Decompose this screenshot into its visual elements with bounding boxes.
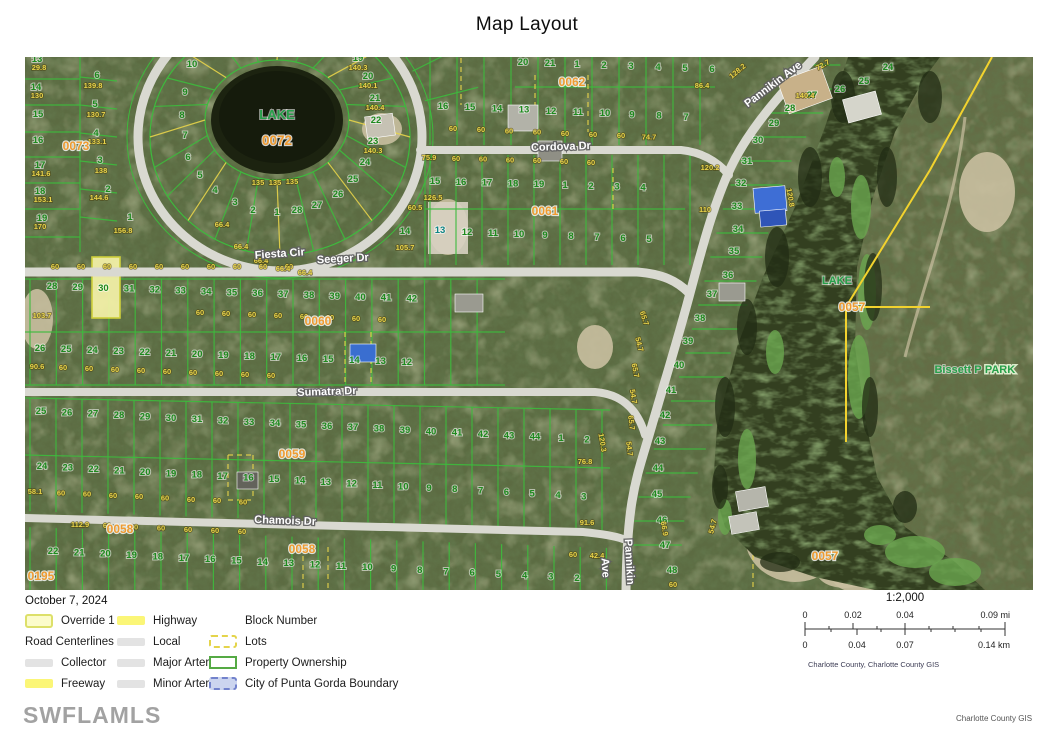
dimension-label: 91.6 — [580, 518, 595, 527]
legend-swatch-road-gray — [117, 680, 145, 688]
dimension-label: 60 — [137, 366, 145, 375]
lot-number: 33 — [732, 201, 743, 212]
area-label: Bissett P — [934, 364, 981, 376]
dimension-label: 138 — [95, 166, 108, 175]
lot-number: 14 — [349, 355, 360, 366]
area-label: LAKE — [822, 275, 852, 287]
lot-number: 16 — [243, 473, 254, 484]
lot-number: 5 — [682, 63, 688, 74]
lot-number: 5 — [496, 569, 502, 580]
lot-number: 27 — [88, 409, 99, 420]
lot-number: 37 — [348, 422, 359, 433]
lot-number: 22 — [88, 464, 99, 475]
legend-label: Highway — [153, 615, 197, 627]
lot-number: 3 — [548, 572, 553, 583]
lot-number: 4 — [655, 62, 661, 73]
area-label: 0072 — [262, 133, 292, 148]
lot-number: 40 — [355, 292, 366, 303]
dimension-label: 60 — [187, 495, 195, 504]
lot-number: 1 — [574, 59, 580, 70]
lot-number: 40 — [426, 426, 437, 437]
lot-number: 40 — [674, 360, 685, 371]
dimension-label: 60 — [83, 490, 91, 499]
dimension-label: 135 — [252, 178, 265, 187]
lot-number: 38 — [304, 290, 315, 301]
lot-number: 37 — [278, 289, 289, 300]
area-label: LAKE — [259, 107, 295, 122]
legend-swatch-road-gray — [25, 659, 53, 667]
block-number-label: 0061 — [532, 204, 559, 218]
lot-number: 26 — [835, 84, 846, 95]
dimension-label: 60 — [241, 370, 249, 379]
legend-item-local: Local — [117, 631, 209, 652]
block-number-label: 0062 — [559, 75, 586, 89]
lot-number: 13 — [435, 225, 446, 236]
lot-number: 17 — [271, 352, 282, 363]
lot-number: 43 — [655, 436, 666, 447]
page-title: Map Layout — [0, 14, 1054, 36]
lot-number: 2 — [601, 60, 606, 71]
dimension-label: 60 — [233, 262, 241, 271]
dimension-label: 60 — [85, 364, 93, 373]
dimension-label: 105.7 — [396, 243, 415, 252]
dimension-label: 126.5 — [424, 193, 443, 202]
lot-number: 15 — [33, 109, 44, 120]
dimension-label: 139.8 — [84, 81, 103, 90]
scale-label: 0.07 — [896, 640, 914, 650]
lot-number: 28 — [292, 205, 303, 216]
dimension-label: 29.8 — [32, 63, 47, 72]
lot-number: 8 — [179, 110, 184, 121]
lot-number: 12 — [546, 106, 557, 117]
lot-number: 2 — [574, 573, 579, 584]
lot-number: 19 — [218, 350, 229, 361]
dimension-label: 140.4 — [796, 91, 816, 100]
legend-swatch-road-gray — [117, 659, 145, 667]
dimension-label: 60 — [184, 525, 192, 534]
dimension-label: 156.8 — [114, 226, 133, 235]
lot-number: 31 — [742, 156, 753, 167]
dimension-label: 66.4 — [234, 242, 249, 251]
lot-number: 2 — [584, 434, 589, 445]
lot-number: 34 — [733, 224, 744, 235]
dimension-label: 60 — [617, 131, 625, 140]
lot-number: 6 — [94, 70, 99, 81]
lot-number: 11 — [573, 107, 584, 118]
legend-column-1: Override 1Road CenterlinesCollectorFreew… — [25, 610, 117, 694]
lot-number: 41 — [381, 293, 392, 304]
lot-number: 19 — [166, 468, 177, 479]
lot-number: 32 — [736, 178, 747, 189]
lot-number: 42 — [660, 410, 671, 421]
dimension-label: 66.4 — [276, 264, 291, 273]
lot-number: 6 — [185, 152, 190, 163]
lot-number: 10 — [362, 562, 373, 573]
scale-label: 0.02 — [844, 610, 862, 620]
lot-number: 41 — [452, 428, 463, 439]
dimension-label: 60 — [378, 315, 386, 324]
lot-number: 29 — [769, 118, 780, 129]
lot-number: 10 — [600, 108, 611, 119]
lot-number: 4 — [522, 570, 528, 581]
lot-number: 42 — [407, 294, 418, 305]
lot-number: 1 — [558, 433, 564, 444]
legend-item-city-of-punta-gorda-boundary: City of Punta Gorda Boundary — [209, 673, 429, 694]
scale-ratio: 1:2,000 — [782, 592, 1028, 604]
dimension-label: 60 — [267, 371, 275, 380]
dimension-label: 60 — [352, 314, 360, 323]
lot-number: 21 — [166, 348, 177, 359]
lot-number: 30 — [753, 135, 764, 146]
lot-number: 10 — [398, 481, 409, 492]
lot-number: 19 — [534, 179, 545, 190]
lot-number: 35 — [296, 420, 307, 431]
lot-number: 15 — [430, 176, 441, 187]
legend-swatch-override — [25, 614, 53, 628]
dimension-label: 60 — [449, 124, 457, 133]
legend-label: Freeway — [61, 678, 105, 690]
legend-item-road-centerlines: Road Centerlines — [25, 631, 117, 652]
dimension-label: 60 — [669, 580, 677, 589]
lot-number: 6 — [504, 487, 509, 498]
dimension-label: 130 — [31, 91, 44, 100]
legend-swatch-city — [209, 677, 237, 690]
dimension-label: 60 — [59, 363, 67, 372]
lot-number: 21 — [114, 465, 125, 476]
lot-number: 5 — [530, 489, 536, 500]
lot-number: 16 — [297, 353, 308, 364]
dimension-label: 140.1 — [359, 81, 378, 90]
block-number-label: 0057 — [812, 549, 839, 563]
lot-number: 15 — [269, 474, 280, 485]
lot-number: 13 — [321, 477, 332, 488]
lot-number: 12 — [462, 227, 473, 238]
dimension-label: 60 — [505, 126, 513, 135]
dimension-label: 135 — [286, 177, 299, 186]
dimension-label: 60 — [51, 262, 59, 271]
lot-number: 8 — [656, 111, 661, 122]
lot-number: 12 — [310, 560, 321, 571]
legend-item-lots: Lots — [209, 631, 429, 652]
lot-number: 31 — [192, 414, 203, 425]
legend-swatch-lots — [209, 635, 237, 648]
area-label: PARK — [985, 364, 1015, 376]
block-number-label: 0060 — [305, 314, 332, 328]
lot-number: 10 — [187, 59, 198, 70]
lot-number: 2 — [588, 181, 593, 192]
dimension-label: 110 — [699, 205, 711, 214]
block-number-label: 0057 — [839, 300, 866, 314]
dimension-label: 60 — [181, 262, 189, 271]
legend-item-major-arterial: Major Arterial — [117, 652, 209, 673]
dimension-label: 140.3 — [364, 146, 383, 155]
lot-number: 4 — [212, 185, 218, 196]
lot-number: 11 — [336, 561, 347, 572]
watermark: SWFLAMLS — [23, 702, 161, 729]
lot-number: 33 — [244, 417, 255, 428]
dimension-label: 60 — [157, 524, 165, 533]
lot-number: 9 — [629, 109, 634, 120]
lot-number: 36 — [322, 421, 333, 432]
lot-number: 32 — [150, 285, 161, 296]
lot-number: 20 — [140, 467, 151, 478]
lot-number: 42 — [478, 429, 489, 440]
dimension-label: 60 — [213, 496, 221, 505]
dimension-label: 60 — [587, 158, 595, 167]
lot-number: 9 — [426, 483, 431, 494]
lot-number: 1 — [274, 207, 280, 218]
legend-item-block-number: Block Number — [209, 610, 429, 631]
dimension-label: 58.1 — [28, 487, 43, 496]
block-number-label: 0195 — [28, 569, 55, 583]
dimension-label: 60 — [163, 367, 171, 376]
lot-number: 7 — [182, 130, 187, 141]
dimension-label: 140.4 — [366, 103, 386, 112]
legend-item-property-ownership: Property Ownership — [209, 652, 429, 673]
dimension-label: 60 — [207, 262, 215, 271]
lot-number: 31 — [124, 284, 135, 295]
lot-number: 24 — [37, 461, 48, 472]
lot-number: 7 — [478, 486, 483, 497]
dimension-label: 60 — [215, 369, 223, 378]
dimension-label: 74.7 — [642, 132, 657, 141]
legend-label: Collector — [61, 657, 106, 669]
lot-number: 3 — [232, 197, 237, 208]
road-label: Sumatra Dr — [297, 385, 357, 399]
lot-number: 18 — [508, 178, 519, 189]
dimension-label: 60 — [506, 155, 514, 164]
dimension-label: 60 — [211, 526, 219, 535]
lot-number: 17 — [217, 471, 228, 482]
lot-number: 18 — [244, 351, 255, 362]
lot-number: 25 — [61, 344, 72, 355]
lot-number: 27 — [312, 200, 323, 211]
block-number-label: 0058 — [289, 542, 316, 556]
lot-number: 14 — [492, 103, 503, 114]
scale-label: 0 — [802, 640, 807, 650]
scale-label: 0 — [802, 610, 807, 620]
lot-number: 24 — [360, 157, 371, 168]
lot-number: 3 — [97, 155, 102, 166]
block-number-label: 0073 — [63, 139, 90, 153]
legend-label: Road Centerlines — [25, 636, 114, 648]
lot-number: 6 — [709, 64, 714, 75]
dimension-label: 135 — [269, 178, 282, 187]
road-label: Pannikin — [622, 539, 636, 586]
lot-number: 13 — [284, 558, 295, 569]
lot-number: 39 — [329, 291, 340, 302]
lot-number: 1 — [562, 180, 568, 191]
dimension-label: 90.6 — [30, 362, 45, 371]
legend-swatch-road-yellow — [117, 616, 145, 625]
lot-number: 30 — [98, 283, 109, 294]
lot-number: 14 — [257, 557, 268, 568]
dimension-label: 60 — [189, 368, 197, 377]
map-region[interactable]: text{font-family:"Liberation Sans",sans-… — [25, 57, 1033, 590]
scale-label: 0.04 — [896, 610, 914, 620]
lot-number: 18 — [153, 551, 164, 562]
dimension-label: 86.4 — [695, 81, 710, 90]
lot-number: 11 — [372, 480, 383, 491]
lot-number: 21 — [74, 547, 85, 558]
dimension-label: 130.7 — [87, 110, 106, 119]
dimension-label: 60 — [479, 155, 487, 164]
legend-item-collector: Collector — [25, 652, 117, 673]
lot-number: 38 — [374, 424, 385, 435]
lot-number: 10 — [514, 229, 525, 240]
dimension-label: 54.7 — [624, 441, 635, 457]
lot-number: 39 — [400, 425, 411, 436]
legend-item-freeway: Freeway — [25, 673, 117, 694]
lot-number: 36 — [723, 270, 734, 281]
lot-number: 33 — [175, 286, 186, 297]
road-label: Cordova Dr — [531, 140, 592, 154]
legend-label: Override 1 — [61, 615, 115, 627]
lot-number: 28 — [114, 410, 125, 421]
block-number-label: 0059 — [279, 447, 306, 461]
lot-number: 13 — [375, 356, 386, 367]
lot-number: 37 — [707, 289, 718, 300]
dimension-label: 60 — [222, 309, 230, 318]
lot-number: 19 — [126, 550, 137, 561]
lot-number: 35 — [729, 246, 740, 257]
road-label: Ave — [598, 558, 611, 578]
scale-label: 0.04 — [848, 640, 866, 650]
lot-number: 8 — [568, 231, 573, 242]
lot-number: 15 — [465, 102, 476, 113]
map-date: October 7, 2024 — [25, 595, 107, 607]
lot-number: 48 — [667, 565, 678, 576]
lot-number: 29 — [140, 411, 151, 422]
legend-swatch-road-yellow — [25, 679, 53, 688]
lot-number: 44 — [530, 432, 541, 443]
scale-bar: 00.020.040.09 mi00.040.070.14 km — [782, 606, 1038, 656]
legend-label: Local — [153, 636, 181, 648]
lot-number: 7 — [683, 112, 688, 123]
lot-number: 39 — [683, 336, 694, 347]
legend-item-minor-arterial: Minor Arterial — [117, 673, 209, 694]
dimension-label: 60 — [533, 156, 541, 165]
dimension-label: 60 — [161, 494, 169, 503]
road-label: Chamois Dr — [254, 514, 317, 528]
dimension-label: 60 — [248, 310, 256, 319]
lot-number: 9 — [182, 87, 187, 98]
dimension-label: 60 — [111, 365, 119, 374]
dimension-label: 60.5 — [408, 203, 423, 212]
legend-item-override-1: Override 1 — [25, 610, 117, 631]
lot-number: 23 — [113, 346, 124, 357]
legend-label: Property Ownership — [245, 657, 347, 669]
map-canvas[interactable]: text{font-family:"Liberation Sans",sans-… — [25, 57, 1033, 590]
lot-number: 16 — [456, 177, 467, 188]
dimension-label: 60 — [452, 154, 460, 163]
lot-number: 17 — [482, 178, 493, 189]
lot-number: 7 — [594, 232, 599, 243]
lot-number: 28 — [47, 281, 58, 292]
lot-number: 8 — [417, 565, 422, 576]
lot-number: 24 — [87, 345, 98, 356]
lot-number: 29 — [72, 282, 83, 293]
lot-number: 23 — [63, 462, 74, 473]
legend-column-2: HighwayLocalMajor ArterialMinor Arterial — [117, 610, 209, 694]
legend-label: City of Punta Gorda Boundary — [245, 678, 398, 690]
lot-number: 16 — [205, 554, 216, 565]
legend-label: Block Number — [245, 615, 317, 627]
lot-number: 22 — [48, 546, 59, 557]
lot-number: 4 — [640, 182, 646, 193]
dimension-label: 76.8 — [578, 457, 593, 466]
lot-number: 25 — [348, 174, 359, 185]
lot-number: 5 — [92, 99, 98, 110]
lot-number: 16 — [33, 135, 44, 146]
dimension-label: 60 — [569, 550, 577, 559]
dimension-label: 60 — [239, 497, 247, 506]
lot-number: 45 — [652, 489, 663, 500]
dimension-label: 60 — [57, 488, 65, 497]
dimension-label: 141.6 — [32, 169, 51, 178]
lot-number: 26 — [35, 343, 46, 354]
lot-number: 34 — [201, 286, 212, 297]
dimension-label: 60 — [477, 125, 485, 134]
lot-number: 14 — [400, 226, 411, 237]
lot-number: 11 — [488, 228, 499, 239]
lot-number: 1 — [127, 212, 133, 223]
lot-number: 22 — [371, 115, 382, 126]
lot-number: 16 — [438, 101, 449, 112]
lot-number: 36 — [252, 288, 263, 299]
lot-number: 41 — [666, 385, 677, 396]
lot-number: 13 — [519, 105, 530, 116]
legend-column-3: Block NumberLotsProperty OwnershipCity o… — [209, 610, 429, 694]
lot-number: 5 — [646, 234, 652, 245]
dimension-label: 60 — [109, 491, 117, 500]
dimension-label: 153.1 — [34, 195, 53, 204]
dimension-label: 140.3 — [349, 63, 368, 72]
block-number-label: 0058 — [107, 522, 134, 536]
dimension-label: 60 — [155, 262, 163, 271]
scale-label: 0.09 mi — [980, 610, 1010, 620]
scale-bar-group: 1:2,000 00.020.040.09 mi00.040.070.14 km… — [782, 592, 1038, 654]
dimension-label: 66.4 — [298, 268, 313, 277]
lot-number: 8 — [452, 484, 457, 495]
lot-number: 20 — [100, 549, 111, 560]
lot-number: 3 — [581, 491, 586, 502]
lot-number: 18 — [192, 470, 203, 481]
lot-number: 9 — [391, 564, 396, 575]
dimension-label: 60 — [129, 262, 137, 271]
lot-number: 28 — [785, 103, 796, 114]
legend-swatch-road-gray — [117, 638, 145, 646]
legend-swatch-ownership — [209, 656, 237, 669]
lot-number: 47 — [660, 540, 671, 551]
dimension-label: 60 — [589, 130, 597, 139]
dimension-label: 170 — [34, 222, 47, 231]
lot-number: 6 — [620, 233, 625, 244]
lot-number: 43 — [504, 430, 515, 441]
lot-number: 15 — [323, 354, 334, 365]
dimension-label: 60 — [560, 157, 568, 166]
lot-number: 22 — [140, 347, 151, 358]
lot-number: 32 — [218, 415, 229, 426]
lot-number: 38 — [695, 313, 706, 324]
lot-number: 26 — [62, 407, 73, 418]
lot-number: 6 — [470, 568, 475, 579]
lot-number: 20 — [192, 349, 203, 360]
lot-number: 24 — [883, 62, 894, 73]
lot-number: 9 — [542, 230, 547, 241]
lot-number: 4 — [555, 490, 561, 501]
dimension-label: 103.7 — [33, 311, 52, 320]
